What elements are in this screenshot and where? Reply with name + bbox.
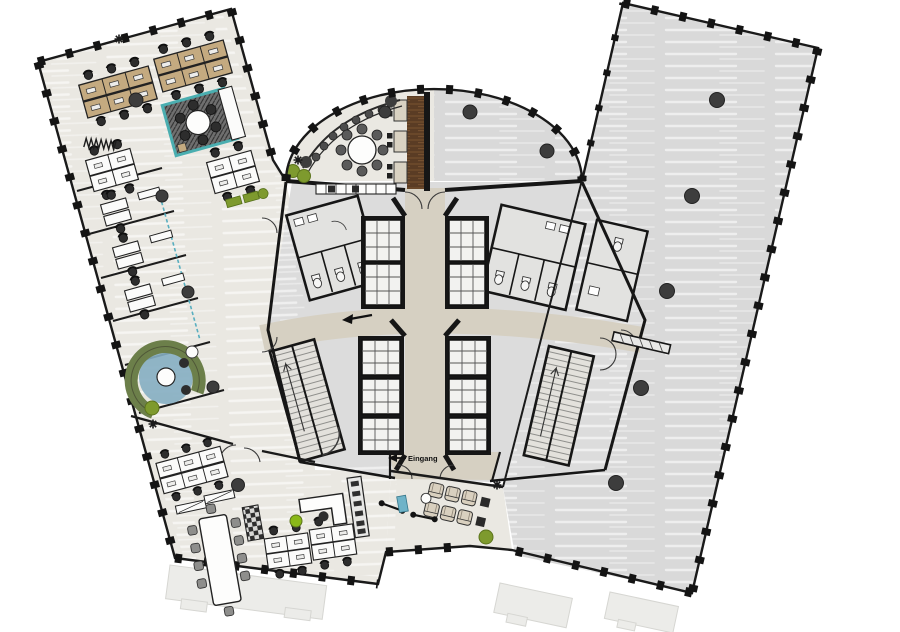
terrace-round-table (336, 124, 388, 176)
terrace-divider-wall (424, 92, 430, 191)
plant-star-icon (115, 35, 124, 44)
terrace-cabinets (316, 184, 396, 194)
plant (479, 530, 493, 544)
plant-star-icon (493, 481, 502, 490)
lift-bank-upper-right (445, 216, 489, 309)
plant-star-icon (149, 420, 158, 429)
terrace-wood-floor (407, 96, 424, 189)
lift-bank-upper-left (361, 216, 405, 309)
lift-bank-lower-left (358, 336, 404, 455)
plant-star-icon (294, 156, 303, 165)
entrance-label: Eingang (408, 454, 438, 463)
plant-bright (290, 515, 302, 527)
floor-plan-drawing: Eingang (0, 0, 900, 632)
lift-bank-lower-right (445, 336, 491, 455)
floor-plan-canvas: Eingang (0, 0, 900, 632)
wc-block-right (482, 205, 586, 310)
